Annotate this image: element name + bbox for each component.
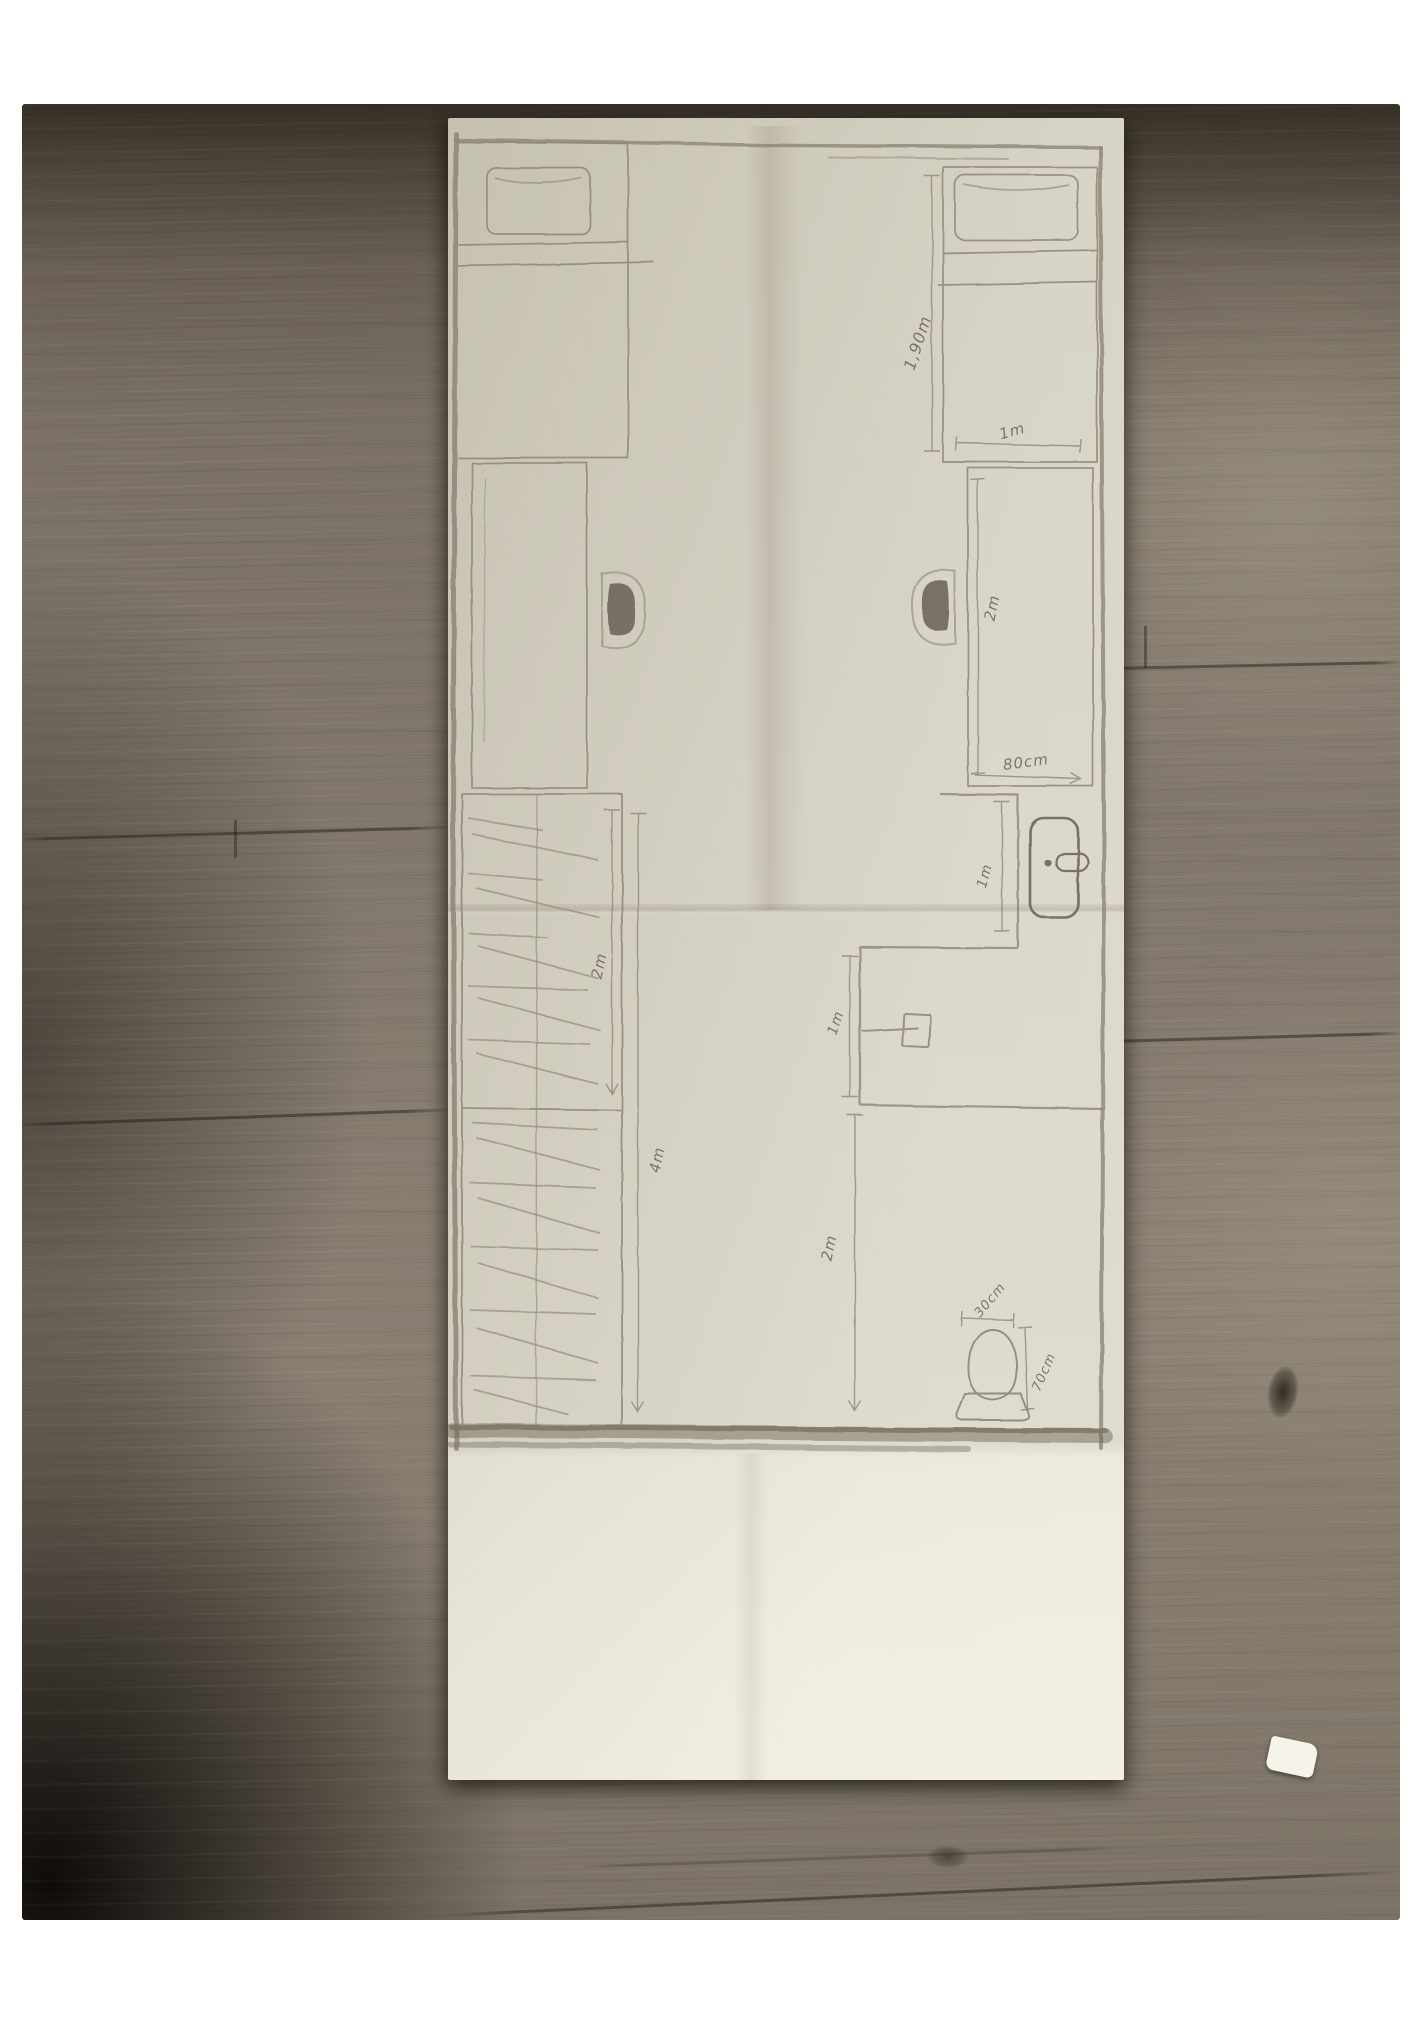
door-knob-icon [1045,860,1052,867]
screenshot-root: { "floorplan": { "dimension_labels": { "… [0,0,1428,2028]
bed-right [938,167,1097,462]
plank-end-seam [234,820,237,858]
toilet-icon [957,1330,1029,1420]
label-desk-length: 2m [980,593,1003,622]
label-toilet-width: 30cm [972,1280,1009,1321]
label-bed-width: 1m [997,419,1027,444]
label-toilet-depth: 70cm [1029,1351,1059,1394]
wardrobe-hatching [468,818,600,1414]
chair-right-icon [912,570,955,644]
door-icon [1030,818,1088,917]
room-outline [450,134,1106,1449]
label-wardrobe-total: 4m [645,1145,668,1174]
desk-left [472,463,587,788]
label-door-width: 1m [974,862,996,890]
label-desk-width: 80cm [1002,750,1050,774]
pillow-left-icon [487,168,590,234]
label-wardrobe-upper: 2m [587,951,610,980]
label-bath-wall: 1m [825,1009,848,1037]
label-bed-length: 1,90m [900,313,935,372]
label-lower-room: 2m [817,1233,840,1262]
dimension-labels: 1,90m 1m 2m 80cm 1m 1m 2m 2m 4m 30cm 70c… [587,313,1059,1394]
sketch-paper: 1,90m 1m 2m 80cm 1m 1m 2m 2m 4m 30cm 70c… [448,118,1124,1780]
pillow-right-icon [955,175,1078,240]
desk-right [968,468,1093,786]
chair-left-icon [602,572,645,647]
wood-knot [928,1846,968,1868]
plank-end-seam [1144,626,1147,668]
floor-photo: 1,90m 1m 2m 80cm 1m 1m 2m 2m 4m 30cm 70c… [22,104,1400,1920]
bed-left [458,142,654,458]
door-handle-icon [1056,853,1088,871]
sink-icon [862,1013,931,1047]
interior-walls [860,794,1105,1109]
floorplan-drawing: 1,90m 1m 2m 80cm 1m 1m 2m 2m 4m 30cm 70c… [448,118,1124,1780]
